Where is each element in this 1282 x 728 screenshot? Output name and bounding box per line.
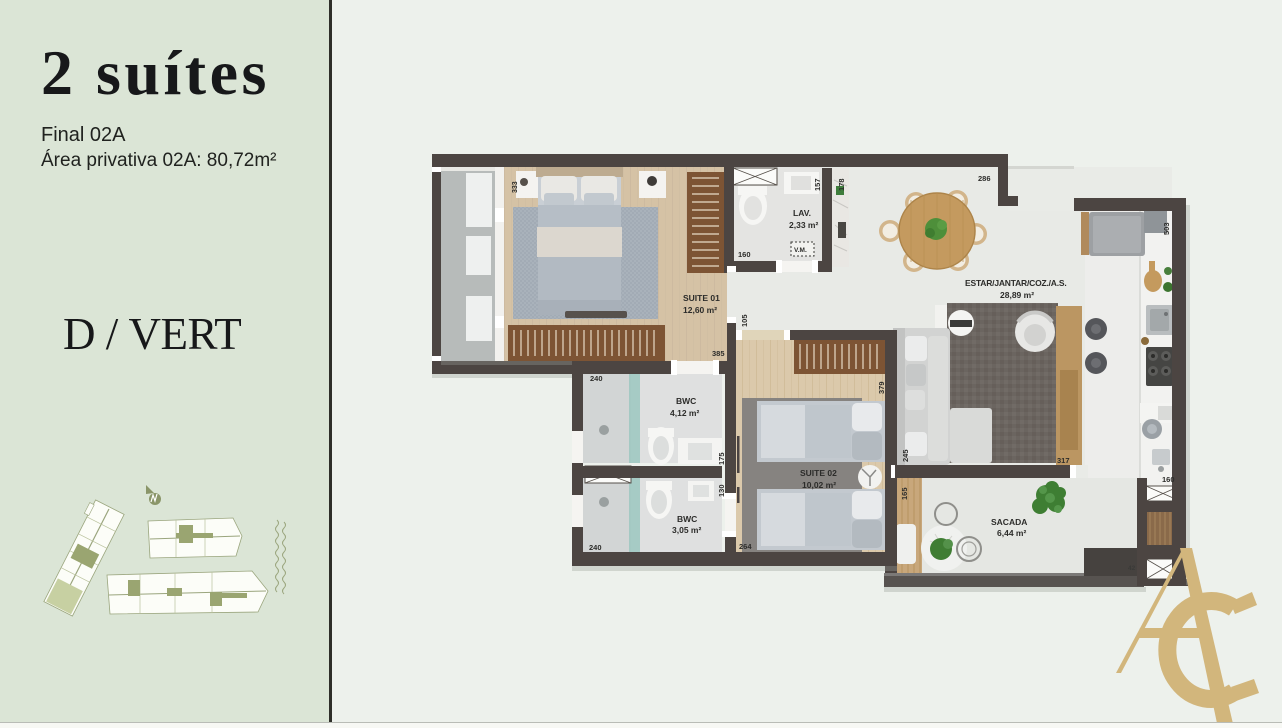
svg-text:10,02 m²: 10,02 m² [802, 480, 836, 490]
svg-text:SACADA: SACADA [991, 517, 1027, 527]
svg-text:379: 379 [877, 381, 886, 394]
svg-text:130: 130 [717, 484, 726, 497]
svg-text:264: 264 [739, 542, 752, 551]
svg-text:SUITE 02: SUITE 02 [800, 468, 837, 478]
svg-text:V.M.: V.M. [794, 247, 807, 254]
svg-text:160: 160 [738, 250, 751, 259]
svg-text:6,44 m²: 6,44 m² [997, 528, 1026, 538]
svg-text:157: 157 [813, 178, 822, 191]
svg-text:28,89 m²: 28,89 m² [1000, 290, 1034, 300]
svg-text:503: 503 [1162, 222, 1171, 235]
svg-text:240: 240 [589, 543, 602, 552]
svg-text:245: 245 [901, 449, 910, 462]
svg-text:178: 178 [837, 178, 846, 191]
svg-text:ESTAR/JANTAR/COZ./A.S.: ESTAR/JANTAR/COZ./A.S. [965, 278, 1067, 288]
svg-text:2,33 m²: 2,33 m² [789, 220, 818, 230]
svg-text:105: 105 [740, 314, 749, 327]
svg-text:12,60 m²: 12,60 m² [683, 305, 717, 315]
svg-text:3,05 m²: 3,05 m² [672, 525, 701, 535]
svg-text:4,12 m²: 4,12 m² [670, 408, 699, 418]
svg-text:385: 385 [712, 349, 725, 358]
svg-text:240: 240 [590, 374, 603, 383]
svg-text:LAV.: LAV. [793, 208, 811, 218]
svg-text:286: 286 [978, 174, 991, 183]
svg-text:317: 317 [1057, 456, 1070, 465]
svg-text:BWC: BWC [677, 514, 697, 524]
svg-text:333: 333 [512, 181, 519, 193]
svg-text:175: 175 [717, 452, 726, 465]
svg-text:BWC: BWC [676, 396, 696, 406]
svg-text:SUITE 01: SUITE 01 [683, 293, 720, 303]
svg-text:165: 165 [900, 487, 909, 500]
